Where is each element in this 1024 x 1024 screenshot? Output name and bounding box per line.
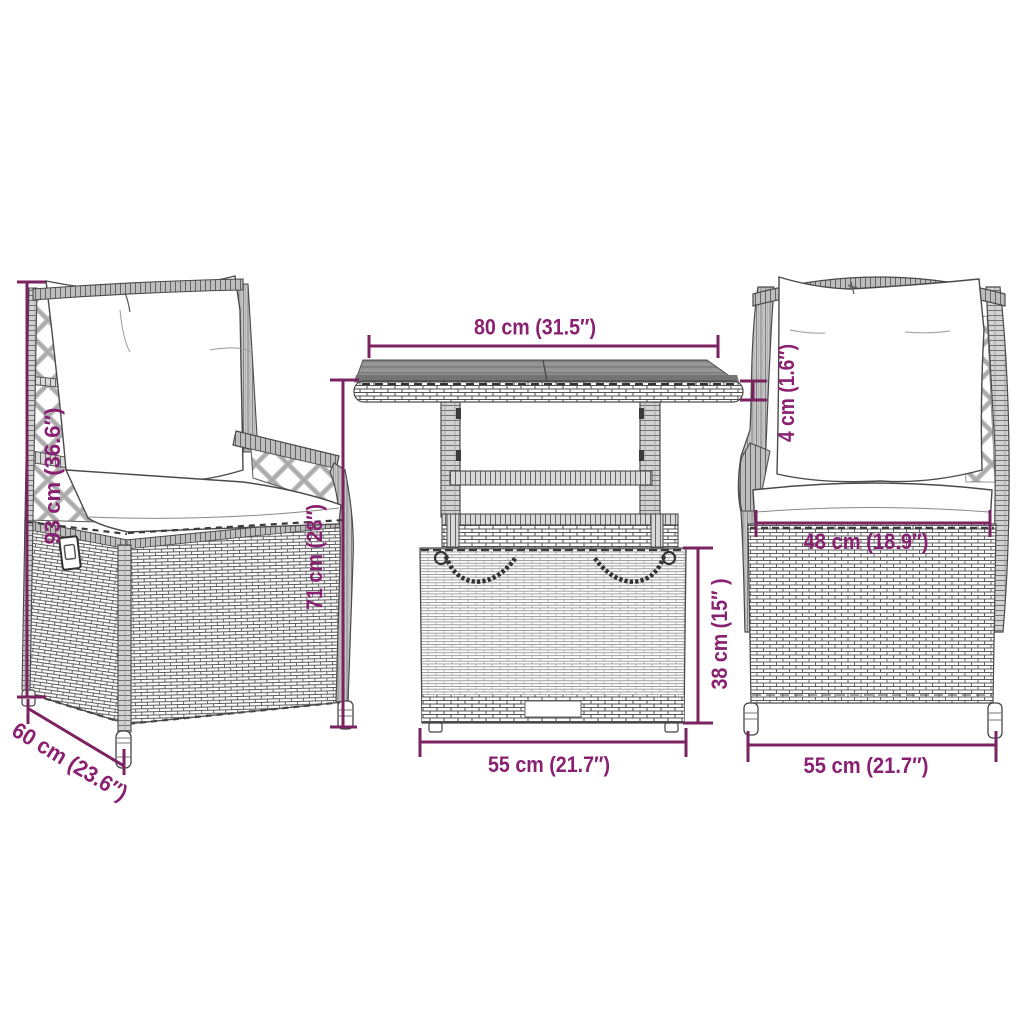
svg-text:80 cm (31.5″): 80 cm (31.5″) — [474, 315, 596, 340]
svg-text:38 cm (15″ ): 38 cm (15″ ) — [707, 579, 732, 690]
svg-text:55 cm (21.7″): 55 cm (21.7″) — [488, 752, 610, 777]
svg-text:55 cm (21.7″): 55 cm (21.7″) — [804, 753, 929, 778]
svg-text:71 cm (28″): 71 cm (28″) — [302, 504, 327, 610]
svg-text:60 cm (23.6″): 60 cm (23.6″) — [8, 717, 132, 805]
svg-text:48 cm (18.9″): 48 cm (18.9″) — [804, 529, 929, 554]
svg-text:93 cm (36.6″): 93 cm (36.6″) — [40, 408, 65, 545]
svg-text:4 cm (1.6″): 4 cm (1.6″) — [774, 344, 799, 442]
